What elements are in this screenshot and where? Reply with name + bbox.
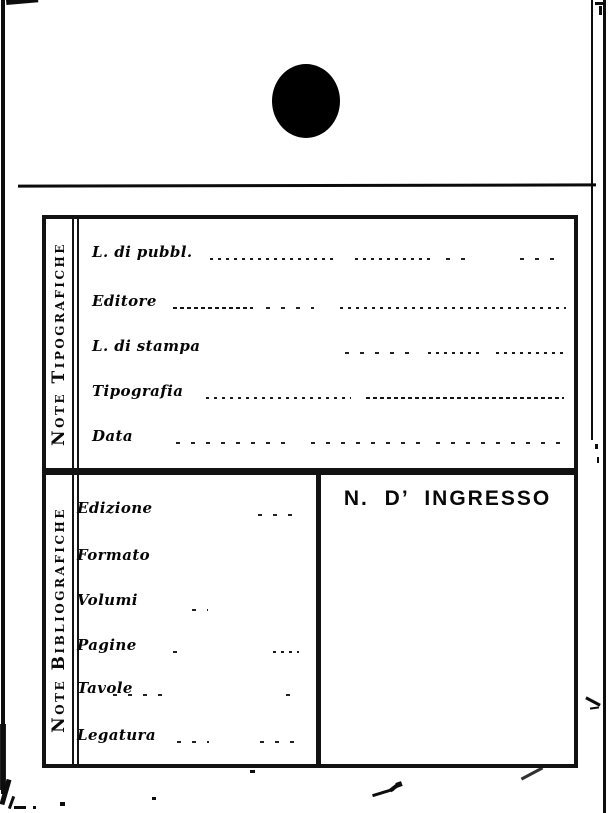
dotted-fill-line — [496, 352, 566, 354]
right-inner-edge-line — [591, 0, 593, 440]
dotted-fill-line — [113, 694, 168, 696]
dotted-fill-line — [210, 258, 336, 260]
section-note-bibliografiche: Note Bibliografiche Edizione Formato Vol… — [46, 475, 574, 764]
top-right-corner-tick — [595, 2, 605, 5]
dotted-fill-line — [206, 397, 351, 399]
right-edge-pen-hook2 — [590, 706, 599, 709]
top-left-corner-tick — [6, 0, 38, 5]
field-label: Legatura — [77, 726, 156, 744]
dotted-fill-line — [176, 442, 296, 444]
scan-speck — [60, 802, 65, 806]
field-label: Volumi — [77, 591, 138, 609]
bottom-right-slash — [521, 767, 544, 781]
field-label: Edizione — [77, 499, 153, 517]
field-row-editore: Editore — [46, 292, 568, 314]
field-label: Data — [92, 427, 133, 445]
field-row-l-di-pubbl: L. di pubbl. — [46, 243, 568, 265]
scan-speck — [595, 444, 598, 449]
field-row-l-di-stampa: L. di stampa — [46, 337, 568, 359]
field-label: L. di stampa — [92, 337, 200, 355]
field-row-data: Data — [46, 427, 568, 449]
field-label: Formato — [77, 546, 150, 564]
dotted-fill-line — [286, 694, 300, 696]
dotted-fill-line — [355, 258, 430, 260]
dotted-fill-line — [260, 741, 294, 743]
right-page-edge-line — [603, 0, 606, 813]
hole-punch-dot — [272, 64, 340, 138]
field-row-tipografia: Tipografia — [46, 382, 568, 404]
dotted-fill-line — [266, 307, 314, 309]
header-rule — [18, 183, 596, 187]
field-label: Pagine — [77, 636, 137, 654]
dotted-fill-line — [428, 352, 483, 354]
scan-speck — [152, 797, 156, 800]
dotted-fill-line — [258, 514, 300, 516]
dotted-fill-line — [446, 258, 472, 260]
dotted-fill-line — [366, 397, 564, 399]
dotted-fill-line — [345, 352, 415, 354]
dotted-fill-line — [520, 258, 564, 260]
pen-flourish-head — [395, 781, 402, 788]
dotted-fill-line — [173, 307, 253, 309]
bottom-left-pen-tick2 — [14, 806, 26, 809]
dotted-fill-line — [340, 307, 566, 309]
scan-speck — [597, 457, 599, 463]
dotted-fill-line — [273, 651, 299, 653]
left-page-edge-line — [1, 0, 5, 794]
section-note-tipografiche: Note Tipografiche L. di pubbl. Editore L… — [46, 219, 574, 475]
dotted-fill-line — [173, 651, 181, 653]
field-label: Editore — [92, 292, 157, 310]
top-right-corner-tick2 — [599, 6, 602, 15]
dotted-fill-line — [192, 609, 208, 611]
scanned-catalog-card-page: Note Tipografiche L. di pubbl. Editore L… — [0, 0, 609, 813]
catalog-card-box: Note Tipografiche L. di pubbl. Editore L… — [42, 215, 578, 768]
field-label: L. di pubbl. — [92, 243, 193, 261]
field-label: Tipografia — [92, 382, 183, 400]
scan-speck — [33, 806, 36, 809]
scan-speck — [250, 770, 255, 773]
ingresso-cell: N. D’ INGRESSO — [321, 475, 574, 764]
dotted-fill-line — [177, 741, 209, 743]
dotted-fill-line — [436, 442, 561, 444]
ingresso-label: N. D’ INGRESSO — [321, 487, 574, 511]
dotted-fill-line — [311, 442, 421, 444]
right-edge-pen-hook — [585, 696, 601, 706]
